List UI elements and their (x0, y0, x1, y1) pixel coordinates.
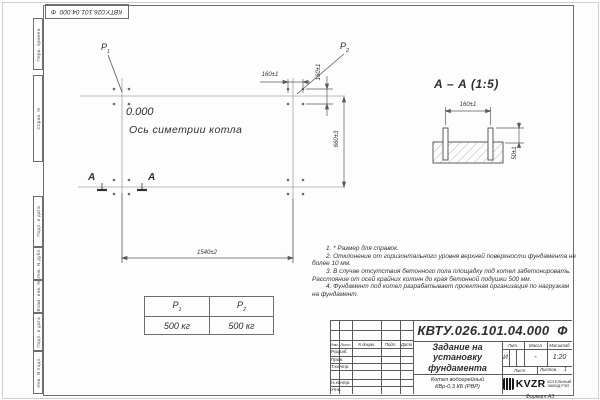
note-1: 1. * Размер для справок. (312, 245, 576, 253)
drawing-sheet: КВТУ.026.101.04.000 Ф Перв. примен. Спра… (0, 0, 600, 400)
dim-top-horizontal: 160±1 (256, 72, 284, 78)
section-title: А – А (1:5) (434, 77, 499, 91)
section-letter-left: А (88, 172, 95, 183)
section-dim-height: 50±1 (512, 140, 518, 166)
loads-table: Р1 Р2 500 кг 500 кг (144, 296, 274, 335)
loads-table-header-p2: Р2 (210, 297, 273, 317)
loads-table-header-p1: Р1 (145, 297, 210, 317)
note-2: 2. Отклонение от горизонтального уровня … (312, 253, 576, 268)
note-4: 4. Фундамент под котел разрабатывает про… (312, 283, 576, 298)
dim-top-vertical: 160±1 (316, 57, 322, 87)
load-leader-lines (108, 54, 344, 94)
anchor-bolt-left (443, 128, 448, 160)
section-dim-width: 160±1 (454, 102, 482, 108)
load-p2-label: P2 (340, 41, 349, 54)
plan-dimension-lines (122, 76, 346, 263)
anchor-bolt-right (488, 128, 493, 160)
drawing-linework (0, 0, 600, 400)
p2-sub: 2 (243, 307, 246, 313)
section-view (433, 107, 524, 163)
dim-bottom-1540: 1540±2 (187, 250, 227, 256)
note-3: 3. В случае отсутствия бетонного пола пл… (312, 268, 576, 283)
anchor-bolt-dots (113, 88, 305, 196)
technical-notes: 1. * Размер для справок. 2. Отклонение о… (312, 245, 576, 299)
elevation-mark: 0.000 (126, 106, 154, 118)
loads-table-value-p2: 500 кг (210, 317, 273, 334)
p1-sub: 1 (179, 307, 182, 313)
load-p2-sub: 2 (346, 48, 349, 54)
dim-right-660: 660±3 (334, 124, 340, 154)
load-p1-label: P1 (101, 42, 110, 55)
section-letter-right: А (148, 172, 155, 183)
loads-table-value-p1: 500 кг (145, 317, 210, 334)
boiler-axis-label: Ось симетрии котла (129, 124, 242, 136)
load-p1-sub: 1 (107, 49, 110, 55)
plan-axis-lines (78, 78, 345, 263)
